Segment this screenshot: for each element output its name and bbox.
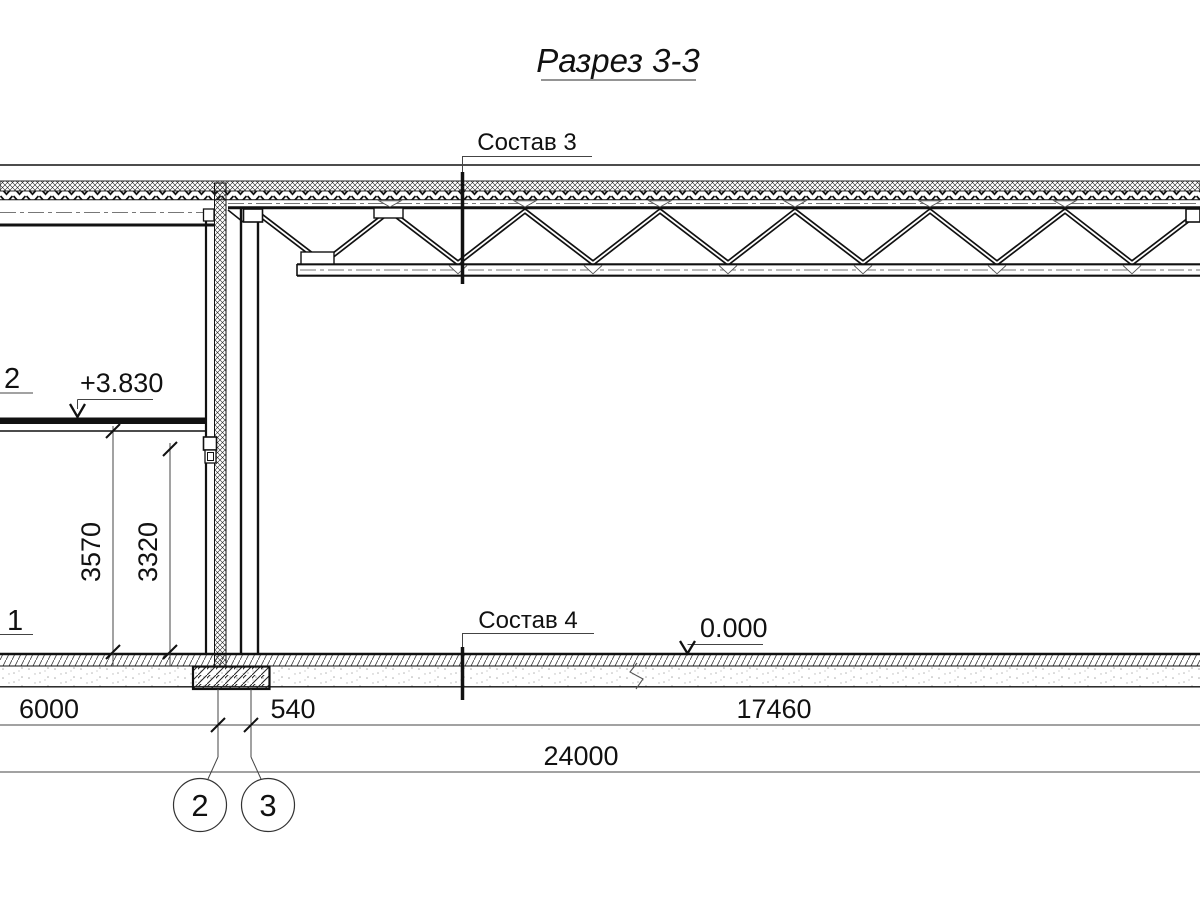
truss-diagonals-outer <box>255 211 1200 263</box>
inner-column-corbel <box>204 209 215 221</box>
floor-base-band <box>0 667 1200 687</box>
drawing-title-group: Разрез 3-3 <box>536 42 700 80</box>
slab-band <box>0 418 206 425</box>
slab-edge-beam <box>204 437 217 450</box>
page-title: Разрез 3-3 <box>536 42 700 79</box>
elevation-0000-text: 0.000 <box>700 613 768 643</box>
axis2-label: 2 <box>191 788 208 823</box>
drawing-canvas: 3570 3320 6000 540 17460 24000 2 3 Соста… <box>0 0 1200 900</box>
position-upper-text: 2 <box>4 363 20 395</box>
horizontal-dimensions: 6000 540 17460 24000 2 3 <box>0 689 1200 832</box>
axis3-leader <box>251 757 261 779</box>
dim-text-6000: 6000 <box>19 694 79 724</box>
elevation-0000-arrow-icon <box>680 641 695 654</box>
truss-bearing-seat <box>244 209 263 222</box>
floor-hatch-band <box>0 654 1200 666</box>
wall-sandwich-panel <box>215 183 227 666</box>
ground-floor <box>0 654 1200 689</box>
axis3-label: 3 <box>259 788 276 823</box>
sostav3-label: Состав 3 <box>477 129 577 156</box>
position-lower-text: 1 <box>7 605 23 637</box>
slab-anchor-inner <box>208 453 214 461</box>
axis2-leader <box>208 757 218 779</box>
dim-text-24000: 24000 <box>543 741 618 771</box>
dim-text-3570: 3570 <box>76 522 106 582</box>
position-label-lower: 1 <box>0 605 33 637</box>
elevation-mark-0000: 0.000 <box>680 613 768 654</box>
bearing-seat-right-edge <box>1186 209 1200 222</box>
floor-slab-level2 <box>0 418 217 464</box>
gusset-plate-bottom-node <box>301 252 334 264</box>
roof-deck-layer <box>0 191 1200 200</box>
roof-insulation-layer <box>0 181 1200 191</box>
dim-text-3320: 3320 <box>133 522 163 582</box>
elevation-3830-text: +3.830 <box>80 368 163 398</box>
sostav4-label: Состав 4 <box>478 607 578 634</box>
vertical-dimensions: 3570 3320 <box>76 424 177 666</box>
elevation-mark-3830: +3.830 <box>70 368 163 417</box>
dim-text-540: 540 <box>270 694 315 724</box>
wall-panel-hatch <box>215 183 227 666</box>
roof-assembly <box>0 165 1200 225</box>
hall-column <box>241 209 263 654</box>
position-label-upper: 2 <box>0 363 33 395</box>
dim-text-17460: 17460 <box>736 694 811 724</box>
gusset-plate-top-node <box>374 208 403 218</box>
roof-truss <box>255 201 1200 276</box>
foundation-block <box>193 667 270 690</box>
